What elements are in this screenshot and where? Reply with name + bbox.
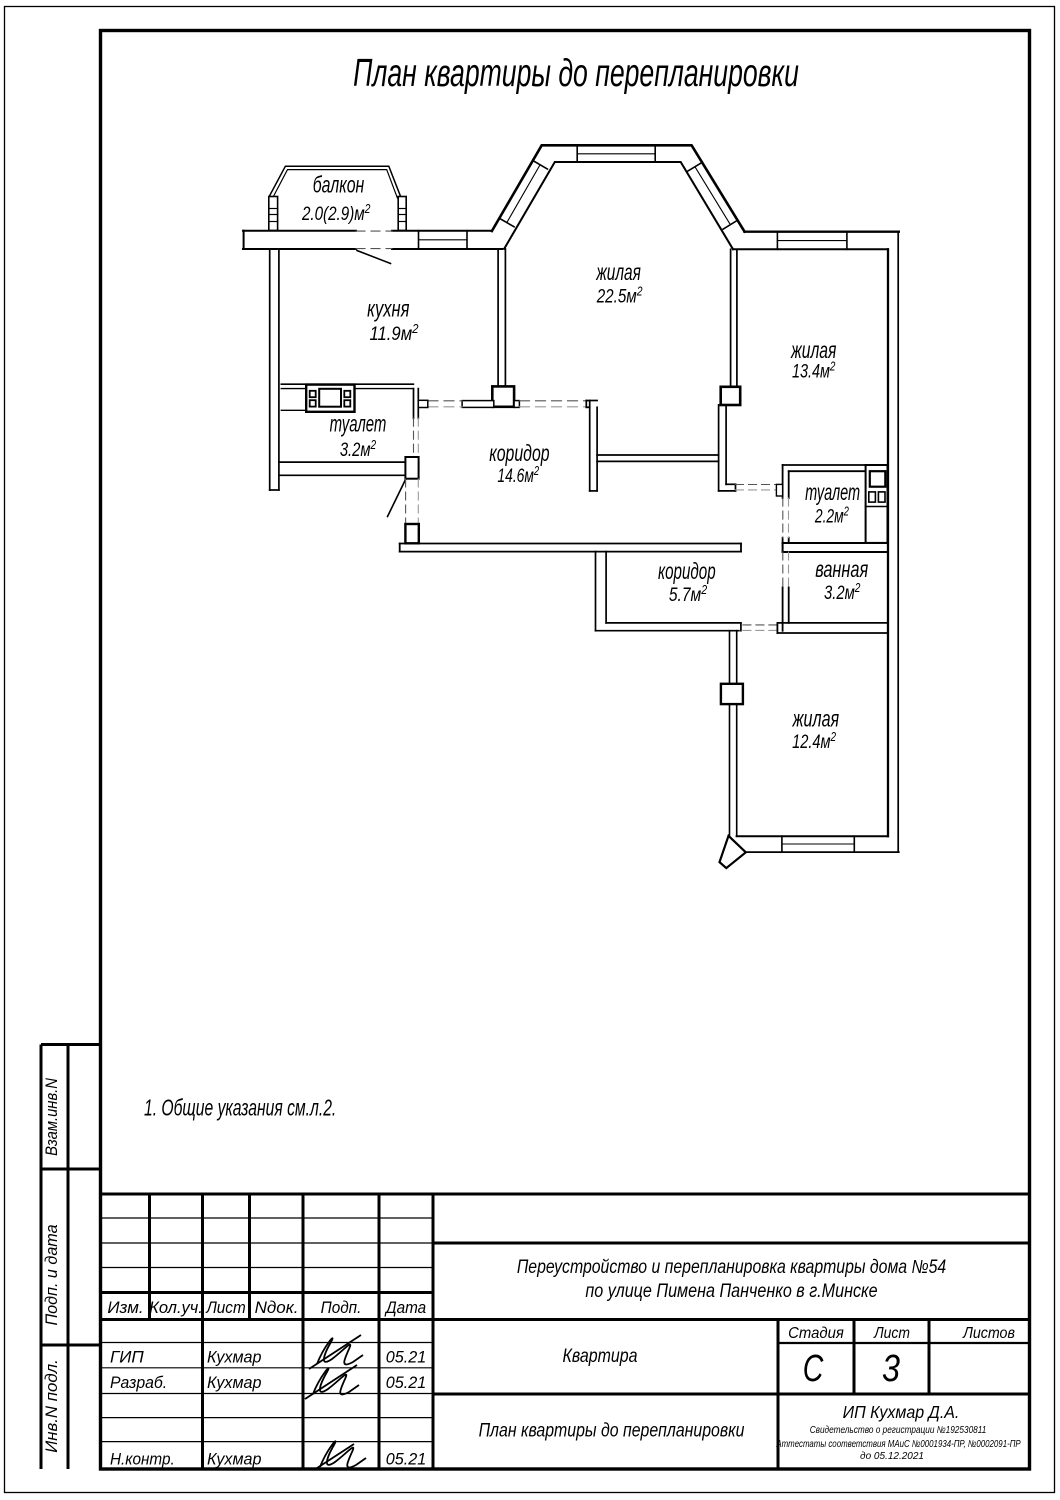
svg-text:Аттестаты соответствия МАиС №0: Аттестаты соответствия МАиС №0001934-ПР,… bbox=[775, 1438, 1020, 1449]
svg-text:Кухмар: Кухмар bbox=[207, 1347, 262, 1366]
svg-text:ГИП: ГИП bbox=[110, 1348, 144, 1367]
svg-text:Переустройство и перепланировк: Переустройство и перепланировка квартиры… bbox=[517, 1256, 947, 1278]
svg-text:кухня: кухня bbox=[367, 297, 410, 322]
svg-text:Листов: Листов bbox=[962, 1324, 1015, 1342]
svg-text:жилая: жилая bbox=[595, 260, 641, 286]
svg-text:12.4м2: 12.4м2 bbox=[792, 730, 837, 753]
svg-text:Кухмар: Кухмар bbox=[207, 1373, 262, 1392]
svg-text:05.21: 05.21 bbox=[386, 1347, 426, 1366]
svg-text:Подп.: Подп. bbox=[321, 1298, 362, 1317]
svg-text:по улице Пимена Панченко в г.М: по улице Пимена Панченко в г.Минске bbox=[585, 1280, 877, 1302]
svg-text:ИП Кухмар Д.А.: ИП Кухмар Д.А. bbox=[843, 1402, 960, 1422]
svg-text:Лист: Лист bbox=[205, 1298, 245, 1317]
svg-text:Свидетельство о регистрации №1: Свидетельство о регистрации №192530811 bbox=[810, 1424, 987, 1435]
svg-text:С: С bbox=[803, 1348, 824, 1390]
svg-text:14.6м2: 14.6м2 bbox=[497, 465, 539, 487]
svg-text:05.21: 05.21 bbox=[386, 1373, 426, 1392]
svg-text:Дата: Дата bbox=[384, 1298, 426, 1317]
svg-text:туалет: туалет bbox=[805, 481, 860, 506]
svg-text:Стадия: Стадия bbox=[788, 1325, 844, 1343]
svg-text:План квартиры до перепланировк: План квартиры до перепланировки bbox=[353, 52, 799, 95]
svg-text:План квартиры до перепланировк: План квартиры до перепланировки bbox=[479, 1419, 745, 1441]
svg-text:балкон: балкон bbox=[313, 173, 365, 199]
svg-text:Кол.уч.: Кол.уч. bbox=[149, 1298, 203, 1317]
svg-text:туалет: туалет bbox=[330, 411, 387, 437]
svg-text:Инв.N подл.: Инв.N подл. bbox=[42, 1359, 61, 1453]
svg-text:1. Общие указания см.л.2.: 1. Общие указания см.л.2. bbox=[144, 1096, 336, 1122]
svg-text:Взам.инв.N: Взам.инв.N bbox=[43, 1078, 61, 1156]
svg-text:коридор: коридор bbox=[489, 441, 549, 467]
svg-text:ванная: ванная bbox=[815, 557, 868, 582]
svg-text:2.0(2.9)м2: 2.0(2.9)м2 bbox=[301, 202, 371, 224]
svg-text:Подп. и дата: Подп. и дата bbox=[42, 1224, 61, 1325]
svg-text:Н.контр.: Н.контр. bbox=[110, 1450, 175, 1469]
svg-text:Разраб.: Разраб. bbox=[110, 1374, 167, 1393]
svg-text:Лист: Лист bbox=[873, 1324, 910, 1342]
svg-text:05.21: 05.21 bbox=[386, 1449, 426, 1468]
svg-text:Квартира: Квартира bbox=[562, 1345, 637, 1367]
svg-text:Nдок.: Nдок. bbox=[255, 1298, 299, 1317]
svg-text:3: 3 bbox=[882, 1348, 900, 1390]
svg-text:Изм.: Изм. bbox=[107, 1298, 143, 1317]
svg-text:Кухмар: Кухмар bbox=[207, 1449, 262, 1468]
svg-text:22.5м2: 22.5м2 bbox=[596, 284, 643, 306]
svg-text:13.4м2: 13.4м2 bbox=[792, 361, 836, 383]
svg-text:до 05.12.2021: до 05.12.2021 bbox=[860, 1451, 924, 1462]
svg-text:11.9м2: 11.9м2 bbox=[369, 321, 418, 344]
svg-text:жилая: жилая bbox=[792, 707, 840, 732]
